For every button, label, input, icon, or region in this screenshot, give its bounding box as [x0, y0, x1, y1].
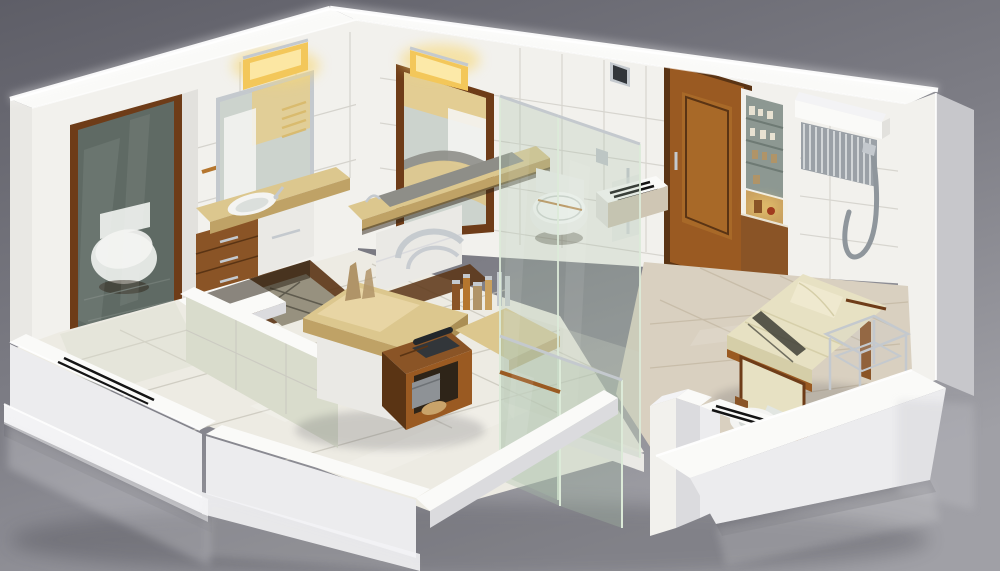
bathroom-isometric-render — [0, 0, 1000, 571]
left-wall-outer-edge — [10, 99, 32, 352]
built-in-shelving — [741, 88, 800, 288]
screenshot-root — [0, 0, 1000, 571]
niche-figurine — [767, 207, 775, 215]
wood-panel-door — [664, 60, 752, 298]
